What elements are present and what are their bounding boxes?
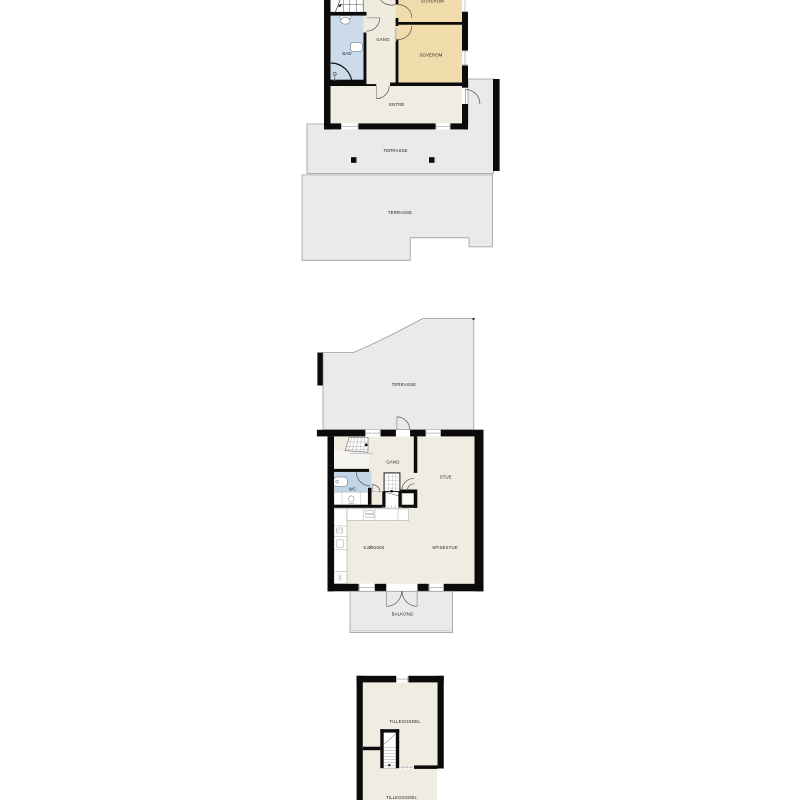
svg-text:TERRASSE: TERRASSE	[383, 148, 407, 153]
svg-text:SOVEROM: SOVEROM	[421, 0, 444, 4]
svg-text:SPISESTUE: SPISESTUE	[432, 545, 457, 550]
svg-text:TERRASSE: TERRASSE	[388, 210, 412, 215]
svg-text:WC: WC	[349, 486, 356, 491]
svg-text:TILLEGGSDEL: TILLEGGSDEL	[389, 719, 420, 724]
svg-text:BALKONG: BALKONG	[392, 611, 414, 616]
svg-text:GANG: GANG	[386, 459, 400, 464]
svg-text:TILLEGGSDEL: TILLEGGSDEL	[386, 795, 417, 800]
svg-text:SOVEROM: SOVEROM	[419, 53, 442, 58]
svg-text:TERRASSE: TERRASSE	[392, 382, 416, 387]
svg-text:KJØKKEN: KJØKKEN	[363, 545, 384, 550]
svg-text:GANG: GANG	[376, 37, 390, 42]
svg-text:STUE: STUE	[440, 474, 452, 479]
svg-text:BAD: BAD	[342, 51, 351, 56]
svg-text:ENTRÉ: ENTRÉ	[389, 102, 404, 107]
